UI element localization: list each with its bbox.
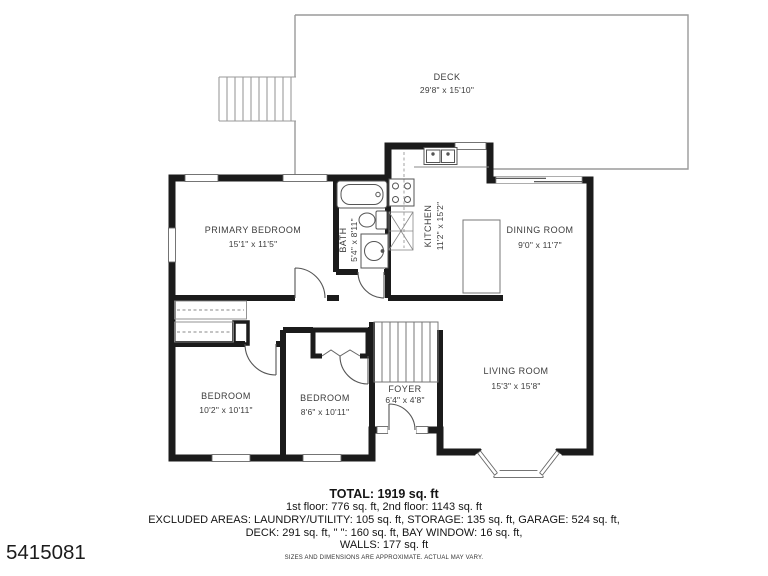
svg-text:29'8" x 15'10": 29'8" x 15'10" bbox=[420, 85, 474, 95]
sliding-door-icon bbox=[496, 177, 582, 184]
toilet-icon bbox=[359, 211, 387, 229]
door-entry bbox=[388, 404, 416, 434]
bath-fixtures bbox=[337, 181, 388, 268]
svg-text:9'0" x 11'7": 9'0" x 11'7" bbox=[518, 240, 562, 250]
excluded-areas-1: EXCLUDED AREAS: LAUNDRY/UTILITY: 105 sq.… bbox=[0, 514, 768, 527]
walls-area: WALLS: 177 sq. ft bbox=[0, 539, 768, 552]
window-icon bbox=[185, 175, 218, 182]
svg-text:LIVING ROOM: LIVING ROOM bbox=[484, 366, 549, 376]
area-summary: TOTAL: 1919 sq. ft 1st floor: 776 sq. ft… bbox=[0, 487, 768, 561]
floor-plan-page: DECK 29'8" x 15'10" PRIMARY BEDROOM 15'1… bbox=[0, 0, 768, 576]
door-bath bbox=[358, 272, 384, 298]
door-bedroom-middle bbox=[340, 356, 368, 384]
foyer-stairs bbox=[374, 322, 438, 382]
window-icon bbox=[169, 228, 176, 262]
label-bedroom-left: BEDROOM 10'2" x 10'11" bbox=[199, 391, 253, 415]
stair-opening bbox=[463, 220, 500, 293]
svg-text:DINING ROOM: DINING ROOM bbox=[507, 225, 574, 235]
plan-id: 5415081 bbox=[6, 541, 86, 565]
window-icon bbox=[303, 455, 341, 462]
pantry-icon bbox=[389, 212, 413, 250]
hall-closet-wall bbox=[234, 322, 248, 344]
svg-text:5'4" x 8'11": 5'4" x 8'11" bbox=[349, 218, 359, 262]
door-primary-bedroom bbox=[295, 268, 325, 298]
svg-text:KITCHEN: KITCHEN bbox=[423, 205, 433, 248]
label-bedroom-middle: BEDROOM 8'6" x 10'11" bbox=[300, 393, 350, 417]
label-foyer: FOYER 6'4" x 4'8" bbox=[385, 384, 424, 405]
closet-bedroom-middle bbox=[313, 330, 368, 356]
stove-icon bbox=[389, 179, 414, 206]
bay-window-icon bbox=[494, 471, 543, 478]
bathtub-icon bbox=[337, 181, 387, 208]
label-living-room: LIVING ROOM 15'3" x 15'8" bbox=[484, 366, 549, 391]
excluded-areas-2: DECK: 291 sq. ft, " ": 160 sq. ft, BAY W… bbox=[0, 527, 768, 540]
svg-text:BEDROOM: BEDROOM bbox=[201, 391, 251, 401]
label-primary-bedroom: PRIMARY BEDROOM 15'1" x 11'5" bbox=[205, 225, 301, 249]
door-bedroom-left bbox=[245, 344, 276, 375]
svg-text:15'1" x 11'5": 15'1" x 11'5" bbox=[229, 239, 278, 249]
window-icon bbox=[212, 455, 250, 462]
svg-text:BEDROOM: BEDROOM bbox=[300, 393, 350, 403]
svg-text:BATH: BATH bbox=[338, 227, 348, 252]
deck-stairs bbox=[219, 77, 296, 121]
window-icon bbox=[416, 427, 428, 434]
label-dining-room: DINING ROOM 9'0" x 11'7" bbox=[507, 225, 574, 250]
kitchen-sink-icon bbox=[424, 148, 457, 165]
window-icon bbox=[377, 427, 388, 434]
svg-text:FOYER: FOYER bbox=[388, 384, 421, 394]
total-area: TOTAL: 1919 sq. ft bbox=[0, 487, 768, 501]
svg-text:15'3" x 15'8": 15'3" x 15'8" bbox=[491, 381, 540, 391]
svg-text:8'6" x 10'11": 8'6" x 10'11" bbox=[301, 407, 350, 417]
svg-text:PRIMARY BEDROOM: PRIMARY BEDROOM bbox=[205, 225, 301, 235]
window-icon bbox=[283, 175, 327, 182]
svg-text:11'2" x 15'2": 11'2" x 15'2" bbox=[435, 202, 445, 251]
svg-text:6'4" x 4'8": 6'4" x 4'8" bbox=[385, 395, 424, 405]
label-bath: BATH 5'4" x 8'11" bbox=[338, 218, 359, 262]
label-deck: DECK 29'8" x 15'10" bbox=[420, 72, 474, 95]
bath-sink-icon bbox=[361, 234, 388, 268]
disclaimer: SIZES AND DIMENSIONS ARE APPROXIMATE. AC… bbox=[0, 555, 768, 561]
window-icon bbox=[455, 143, 486, 150]
floor-areas: 1st floor: 776 sq. ft, 2nd floor: 1143 s… bbox=[0, 501, 768, 514]
label-kitchen: KITCHEN 11'2" x 15'2" bbox=[423, 202, 445, 251]
svg-text:10'2" x 10'11": 10'2" x 10'11" bbox=[199, 405, 253, 415]
svg-text:DECK: DECK bbox=[434, 72, 461, 82]
